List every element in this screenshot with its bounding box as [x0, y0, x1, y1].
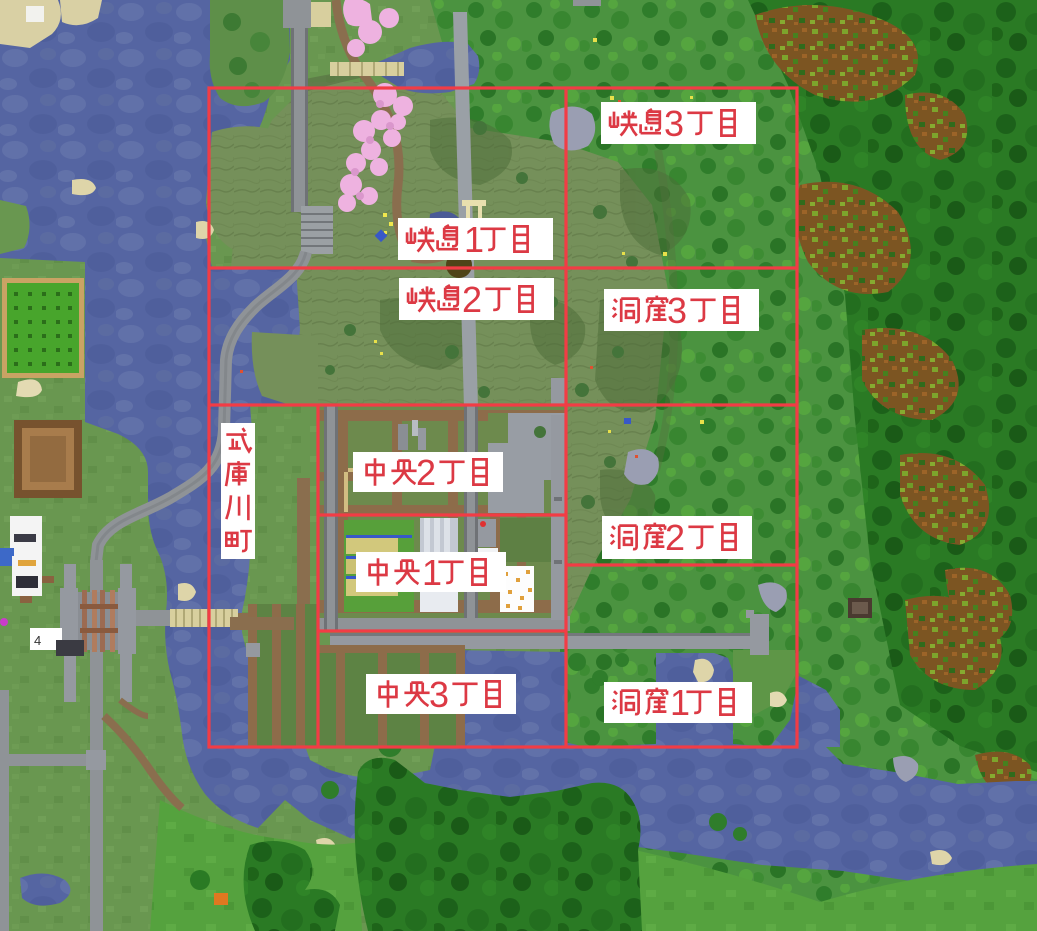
- svg-text:1: 1: [670, 682, 690, 723]
- svg-text:1: 1: [422, 552, 442, 593]
- svg-text:2: 2: [462, 279, 482, 320]
- svg-text:2: 2: [416, 452, 436, 493]
- svg-text:4: 4: [34, 633, 41, 648]
- svg-text:3: 3: [429, 674, 449, 715]
- svg-text:3: 3: [664, 103, 684, 144]
- svg-text:1: 1: [464, 219, 484, 260]
- svg-text:2: 2: [665, 517, 685, 558]
- svg-text:3: 3: [667, 290, 687, 331]
